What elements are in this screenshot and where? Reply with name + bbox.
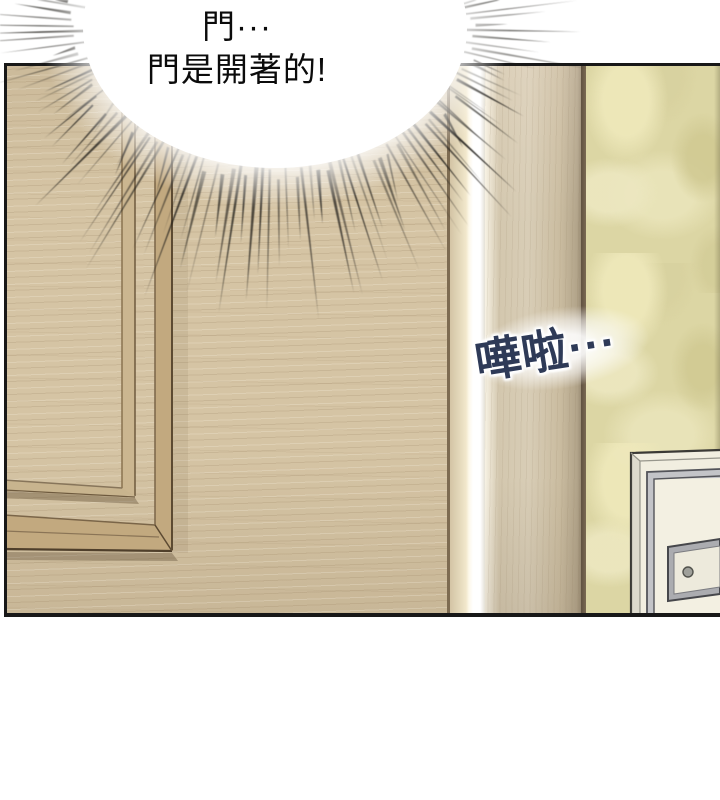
panel-border-bottom	[4, 613, 720, 617]
doorbell-button	[683, 567, 693, 577]
white-door-frame	[624, 448, 720, 617]
comic-page: 門··· 門是開著的! 嘩啦···	[0, 0, 720, 800]
door-panel-molding	[4, 63, 447, 617]
doorbell-plate	[668, 539, 720, 601]
wooden-door	[4, 63, 447, 617]
speech-line-1: 門···	[45, 6, 429, 49]
panel-border-left	[4, 63, 7, 617]
panel-border-top	[4, 63, 720, 66]
